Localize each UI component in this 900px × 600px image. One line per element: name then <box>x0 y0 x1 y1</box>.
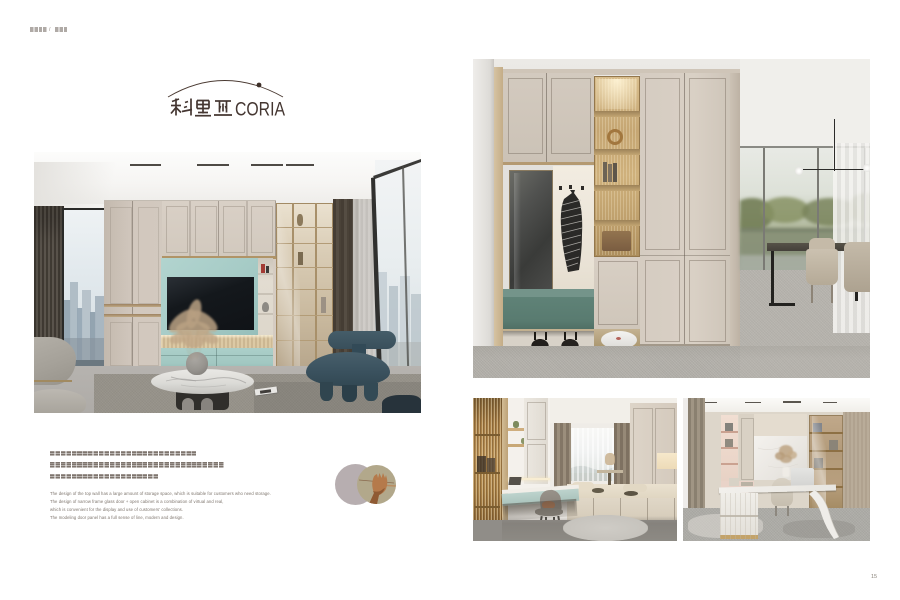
svg-text:CORIA: CORIA <box>235 100 285 121</box>
